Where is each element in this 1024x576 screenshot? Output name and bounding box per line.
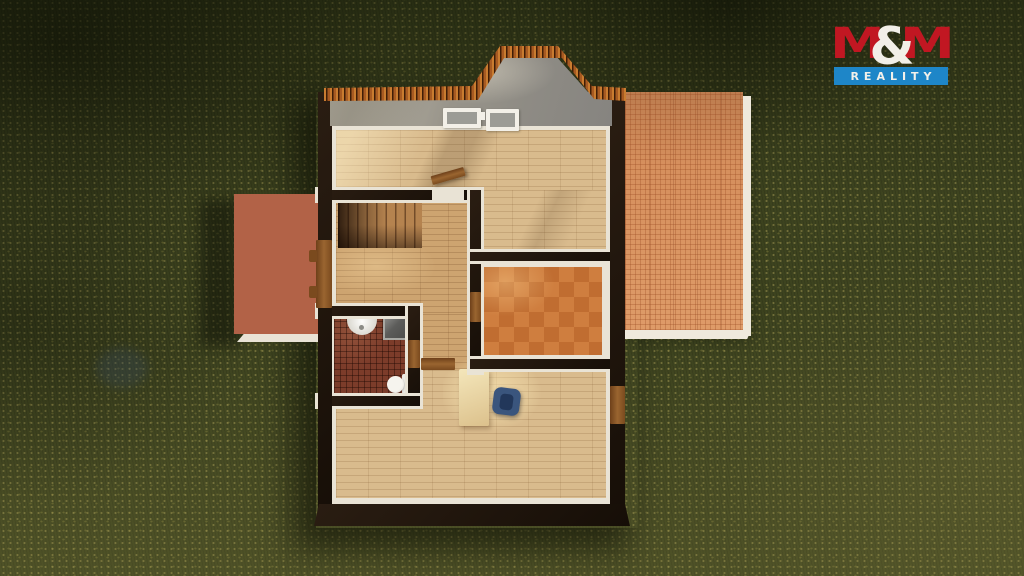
wall-hall-orange-room [470, 190, 481, 372]
door-right-wall [610, 386, 625, 424]
wall-orange-room-bottom [470, 359, 622, 369]
wall-bathroom-top [318, 306, 420, 316]
sunlight-hall [336, 240, 470, 314]
roof-window-right [486, 109, 519, 131]
door-bathroom [408, 340, 420, 368]
door-hinge-bottom [309, 286, 317, 298]
orange-room-light [484, 267, 602, 355]
roof-window-stub [479, 112, 485, 120]
terrace-right-white-edge-bottom [625, 330, 751, 339]
toilet-bowl [387, 376, 404, 393]
outer-wall-right [610, 90, 625, 526]
terrace-right-white-edge-right [743, 96, 751, 336]
roof-window-left [443, 108, 481, 128]
wall-bathroom-bottom [318, 396, 420, 406]
terrace-left-white-edge [237, 334, 321, 342]
outer-wall-bottom [314, 504, 630, 526]
logo-ampersand: & [869, 25, 914, 69]
mm-reality-logo: M & M REALITY [834, 22, 950, 85]
roof-window-left-glass [447, 112, 477, 124]
shower-cabin [383, 314, 410, 340]
sunlight-top-room [336, 130, 606, 190]
door-orange-room [470, 292, 481, 322]
small-ground-shadow [96, 348, 148, 388]
wall-orange-room-top [470, 252, 622, 261]
office-chair-seat [499, 393, 514, 410]
outer-wall-left [318, 92, 332, 526]
doorway-top-room [432, 190, 464, 200]
desk [459, 369, 489, 426]
door-hinge-top [309, 250, 317, 262]
staircase-shadow [338, 202, 422, 248]
door-corridor [421, 358, 455, 370]
door-terrace-left [316, 240, 332, 308]
floorplan-render-scene: M & M REALITY [0, 0, 1024, 576]
mm-reality-logo-mark: M & M [834, 22, 950, 66]
shadow-top-right-room [480, 190, 606, 256]
office-chair [491, 386, 521, 416]
roof-window-right-glass [490, 113, 515, 127]
terrace-left [234, 194, 318, 334]
terrace-right [625, 92, 743, 330]
